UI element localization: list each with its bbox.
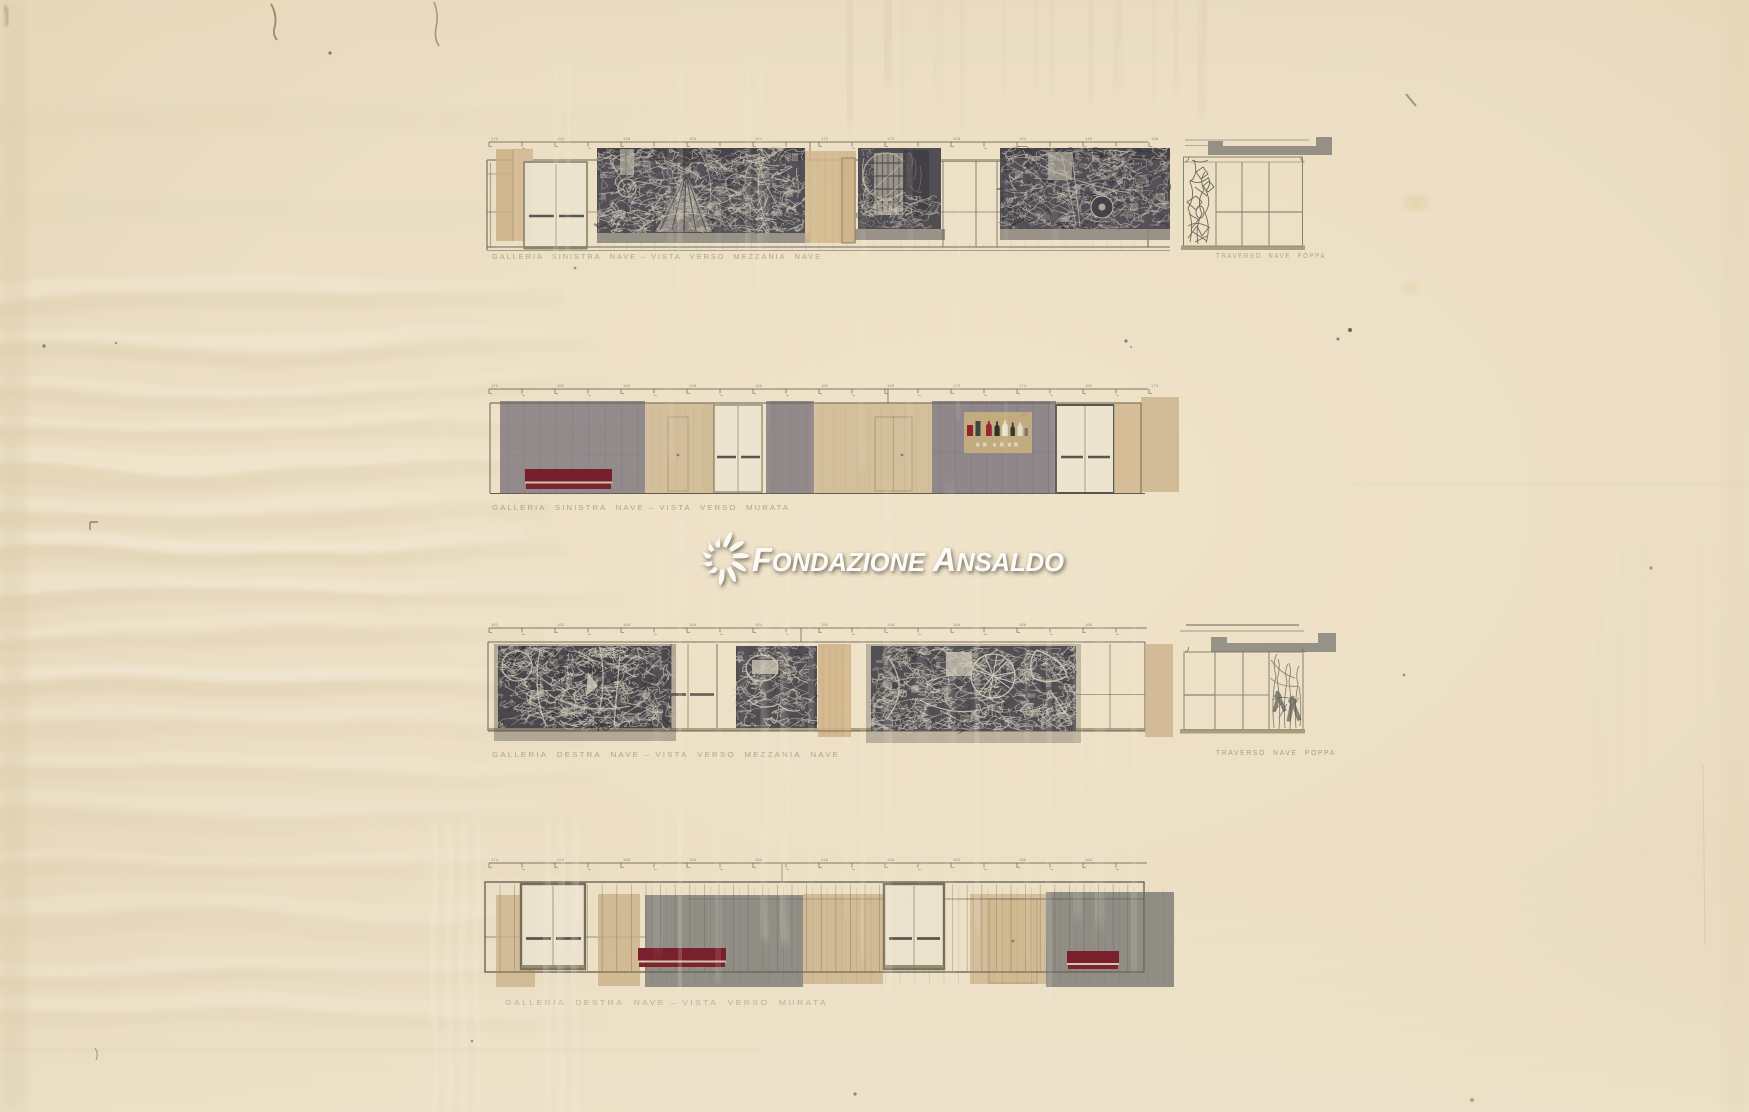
svg-text:FONDAZIONE ANSALDO: FONDAZIONE ANSALDO <box>752 541 1064 578</box>
svg-text:154: 154 <box>1019 136 1027 141</box>
svg-text:162: 162 <box>557 383 565 388</box>
svg-text:154: 154 <box>689 136 697 141</box>
svg-text:162: 162 <box>491 622 499 627</box>
svg-text:170: 170 <box>821 136 829 141</box>
svg-text:154: 154 <box>689 857 697 862</box>
svg-text:GALLERIA SINISTRA NAVE – VIS: GALLERIA SINISTRA NAVE – VISTA VERSO MEZ… <box>492 252 822 261</box>
svg-text:162: 162 <box>557 622 565 627</box>
svg-text:154: 154 <box>755 622 763 627</box>
svg-text:174: 174 <box>1019 383 1027 388</box>
svg-text:166: 166 <box>755 383 763 388</box>
svg-text:166: 166 <box>689 622 697 627</box>
svg-text:158: 158 <box>887 857 895 862</box>
svg-text:162: 162 <box>953 857 961 862</box>
svg-text:170: 170 <box>491 383 499 388</box>
svg-text:158: 158 <box>1151 136 1159 141</box>
svg-text:TRAVERSO NAVE POPPA: TRAVERSO NAVE POPPA <box>1216 748 1336 757</box>
svg-text:158: 158 <box>887 383 895 388</box>
svg-text:148: 148 <box>953 136 961 141</box>
svg-text:170: 170 <box>1151 383 1159 388</box>
svg-text:148: 148 <box>1085 136 1093 141</box>
svg-text:GALLERIA DESTRA NAVE – VISTA: GALLERIA DESTRA NAVE – VISTA VERSO MURAT… <box>505 998 828 1007</box>
svg-text:166: 166 <box>623 622 631 627</box>
svg-text:162: 162 <box>821 383 829 388</box>
svg-text:148: 148 <box>623 136 631 141</box>
svg-text:162: 162 <box>1085 383 1093 388</box>
svg-text:166: 166 <box>953 622 961 627</box>
svg-text:148: 148 <box>689 383 697 388</box>
svg-text:TRAVERSO NAVE POPPA: TRAVERSO NAVE POPPA <box>1216 251 1326 260</box>
svg-text:174: 174 <box>491 857 499 862</box>
svg-text:170: 170 <box>887 136 895 141</box>
svg-text:170: 170 <box>491 136 499 141</box>
svg-text:166: 166 <box>1085 622 1093 627</box>
svg-text:166: 166 <box>623 857 631 862</box>
svg-text:148: 148 <box>821 857 829 862</box>
svg-text:154: 154 <box>821 622 829 627</box>
svg-text:162: 162 <box>1085 857 1093 862</box>
svg-text:166: 166 <box>623 383 631 388</box>
